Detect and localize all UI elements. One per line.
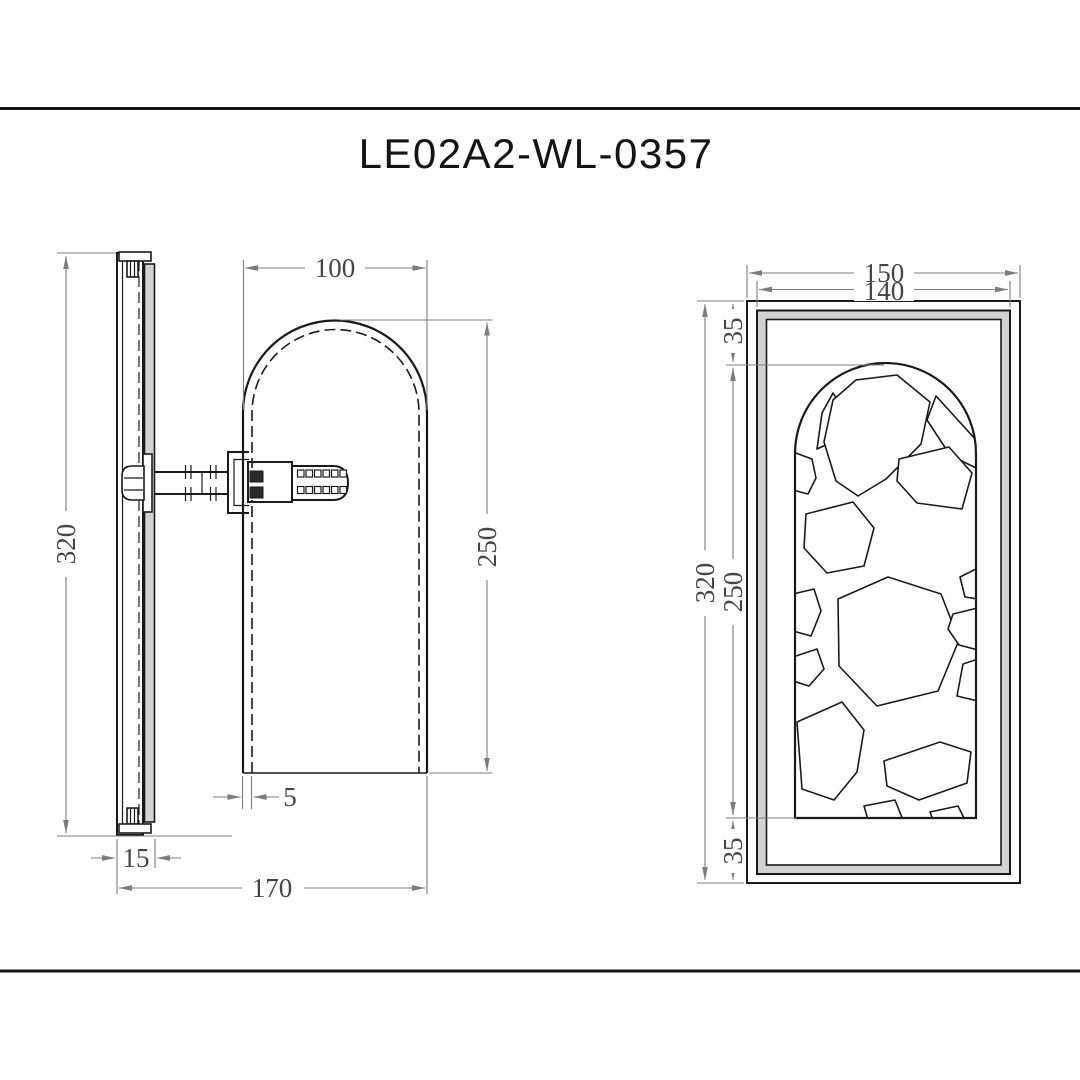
wall-plate — [117, 252, 155, 835]
side-view: 320 100 250 — [51, 252, 502, 903]
plate-top-cap — [119, 252, 151, 261]
dim-front-inner-width-value: 140 — [864, 276, 905, 306]
bracket-outer — [228, 452, 249, 513]
dim-shade-width-value: 100 — [315, 253, 356, 283]
drawing-sheet: LE02A2-WL-0357 — [0, 0, 1080, 1080]
dim-top-inset-value: 35 — [718, 318, 748, 345]
support-arm — [155, 465, 227, 501]
plate-back-strip — [145, 264, 155, 822]
dim-window-height-value: 250 — [718, 572, 748, 613]
lamp-socket — [248, 462, 292, 502]
plate-bottom-cap — [119, 824, 151, 833]
technical-drawing: LE02A2-WL-0357 — [0, 0, 1080, 1080]
socket-contact — [250, 471, 263, 482]
drawing-title: LE02A2-WL-0357 — [359, 130, 714, 177]
dim-shade-width: 100 — [244, 253, 428, 410]
dim-shade-offset-value: 5 — [283, 782, 297, 812]
dim-shade-offset: 5 — [213, 776, 297, 812]
dim-total-depth: 170 — [119, 776, 427, 903]
dim-bottom-inset: 35 — [718, 821, 748, 880]
socket-contact — [250, 487, 263, 498]
dim-top-inset: 35 — [718, 304, 748, 362]
dim-plate-depth: 15 — [91, 839, 181, 894]
dim-side-height-value: 320 — [51, 524, 81, 565]
dim-window-height: 250 — [718, 368, 748, 815]
front-view: 150 140 320 — [690, 258, 1020, 883]
plate-bottom-screw — [127, 808, 138, 824]
shade-inner-hidden-line — [252, 330, 419, 774]
socket-bracket — [228, 452, 249, 513]
led-bulb — [292, 466, 348, 500]
dim-bottom-inset-value: 35 — [718, 838, 748, 865]
dim-front-height-value: 320 — [690, 563, 720, 604]
dim-shade-height-value: 250 — [472, 527, 502, 568]
dim-shade-height: 250 — [340, 320, 502, 773]
dim-plate-depth-value: 15 — [123, 843, 150, 873]
bolt-head — [122, 466, 144, 500]
dim-total-depth-value: 170 — [252, 873, 293, 903]
plate-top-screw — [127, 261, 138, 277]
shade-outline — [243, 321, 427, 774]
